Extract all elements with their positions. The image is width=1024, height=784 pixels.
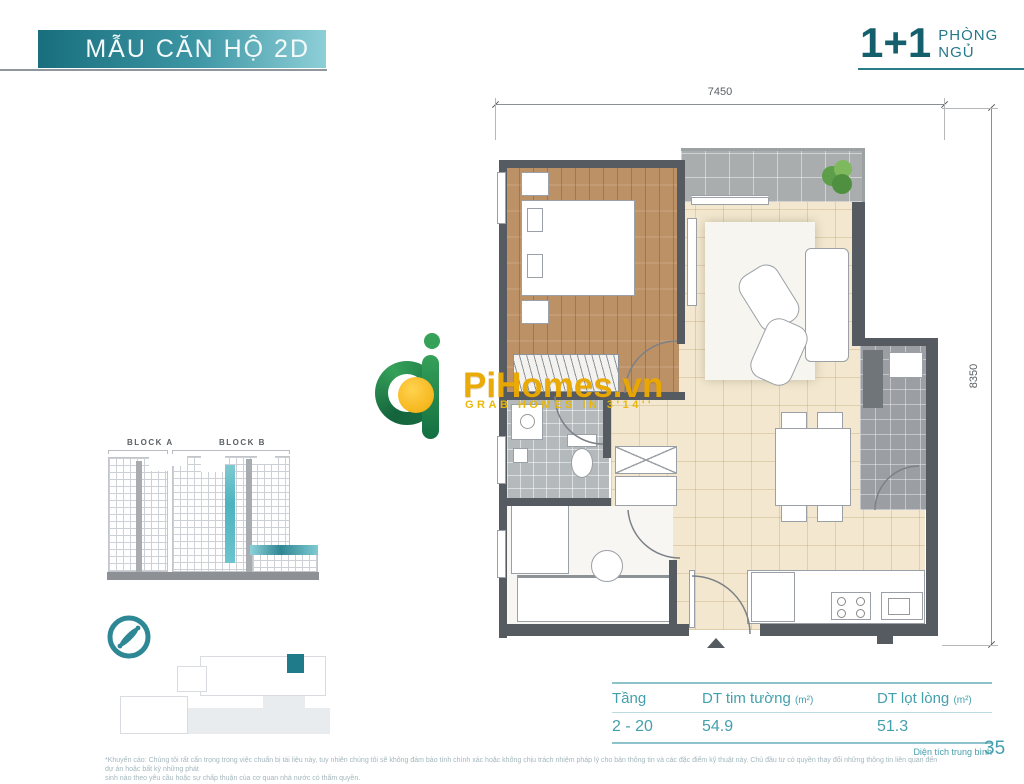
dimension-right: 8350: [960, 108, 1000, 648]
floorplate-outline: [200, 656, 326, 696]
site-plan-minimap: [115, 648, 355, 743]
col-gross: DT tim tường (m²): [702, 684, 877, 712]
bedroom-label: PHÒNG NGỦ: [938, 20, 998, 66]
net-area: 51.3: [877, 713, 992, 742]
disclaimer: *Khuyến cáo: Chúng tôi rất cẩn trọng tro…: [105, 756, 940, 783]
bedroom-count: 1+1: [860, 20, 931, 66]
block-elevation-diagram: BLOCK A BLOCK B: [105, 435, 325, 580]
badge-underline: [858, 68, 1024, 70]
block-a-core: [136, 461, 142, 572]
entrance-arrow-icon: [707, 638, 725, 648]
pihomes-watermark: PiHomes.vn GRAB HOMES IN 3'14'': [375, 333, 675, 453]
podium-grid: [252, 552, 318, 572]
podium-mass: [188, 708, 330, 734]
block-b-label: BLOCK B: [219, 438, 266, 447]
gross-area: 54.9: [702, 713, 877, 742]
podium-highlight: [250, 545, 318, 555]
floor-range: 2 - 20: [612, 713, 702, 742]
page-number: 35: [984, 738, 1005, 760]
table-header-row: Tầng DT tim tường (m²) DT lọt lòng (m²): [612, 684, 992, 712]
unit-stack-highlight: [225, 465, 235, 563]
ground-base: [107, 572, 319, 580]
watermark-tagline: GRAB HOMES IN 3'14'': [465, 399, 654, 411]
banner-underline: [0, 69, 327, 71]
col-net: DT lọt lòng (m²): [877, 684, 992, 712]
tower-outline: [120, 696, 188, 734]
dimension-top: 7450: [495, 86, 945, 140]
block-a-label: BLOCK A: [127, 438, 174, 447]
table-data-row: 2 - 20 54.9 51.3: [612, 713, 992, 742]
page-title-banner: MẪU CĂN HỘ 2D: [38, 30, 326, 68]
area-table: Tầng DT tim tường (m²) DT lọt lòng (m²) …: [612, 682, 992, 757]
col-floor: Tầng: [612, 684, 702, 712]
brochure-page: MẪU CĂN HỘ 2D 1+1 PHÒNG NGỦ 7450 8350: [0, 0, 1024, 784]
bedroom-count-badge: 1+1 PHÒNG NGỦ: [860, 20, 998, 66]
unit-location-highlight: [287, 654, 304, 673]
